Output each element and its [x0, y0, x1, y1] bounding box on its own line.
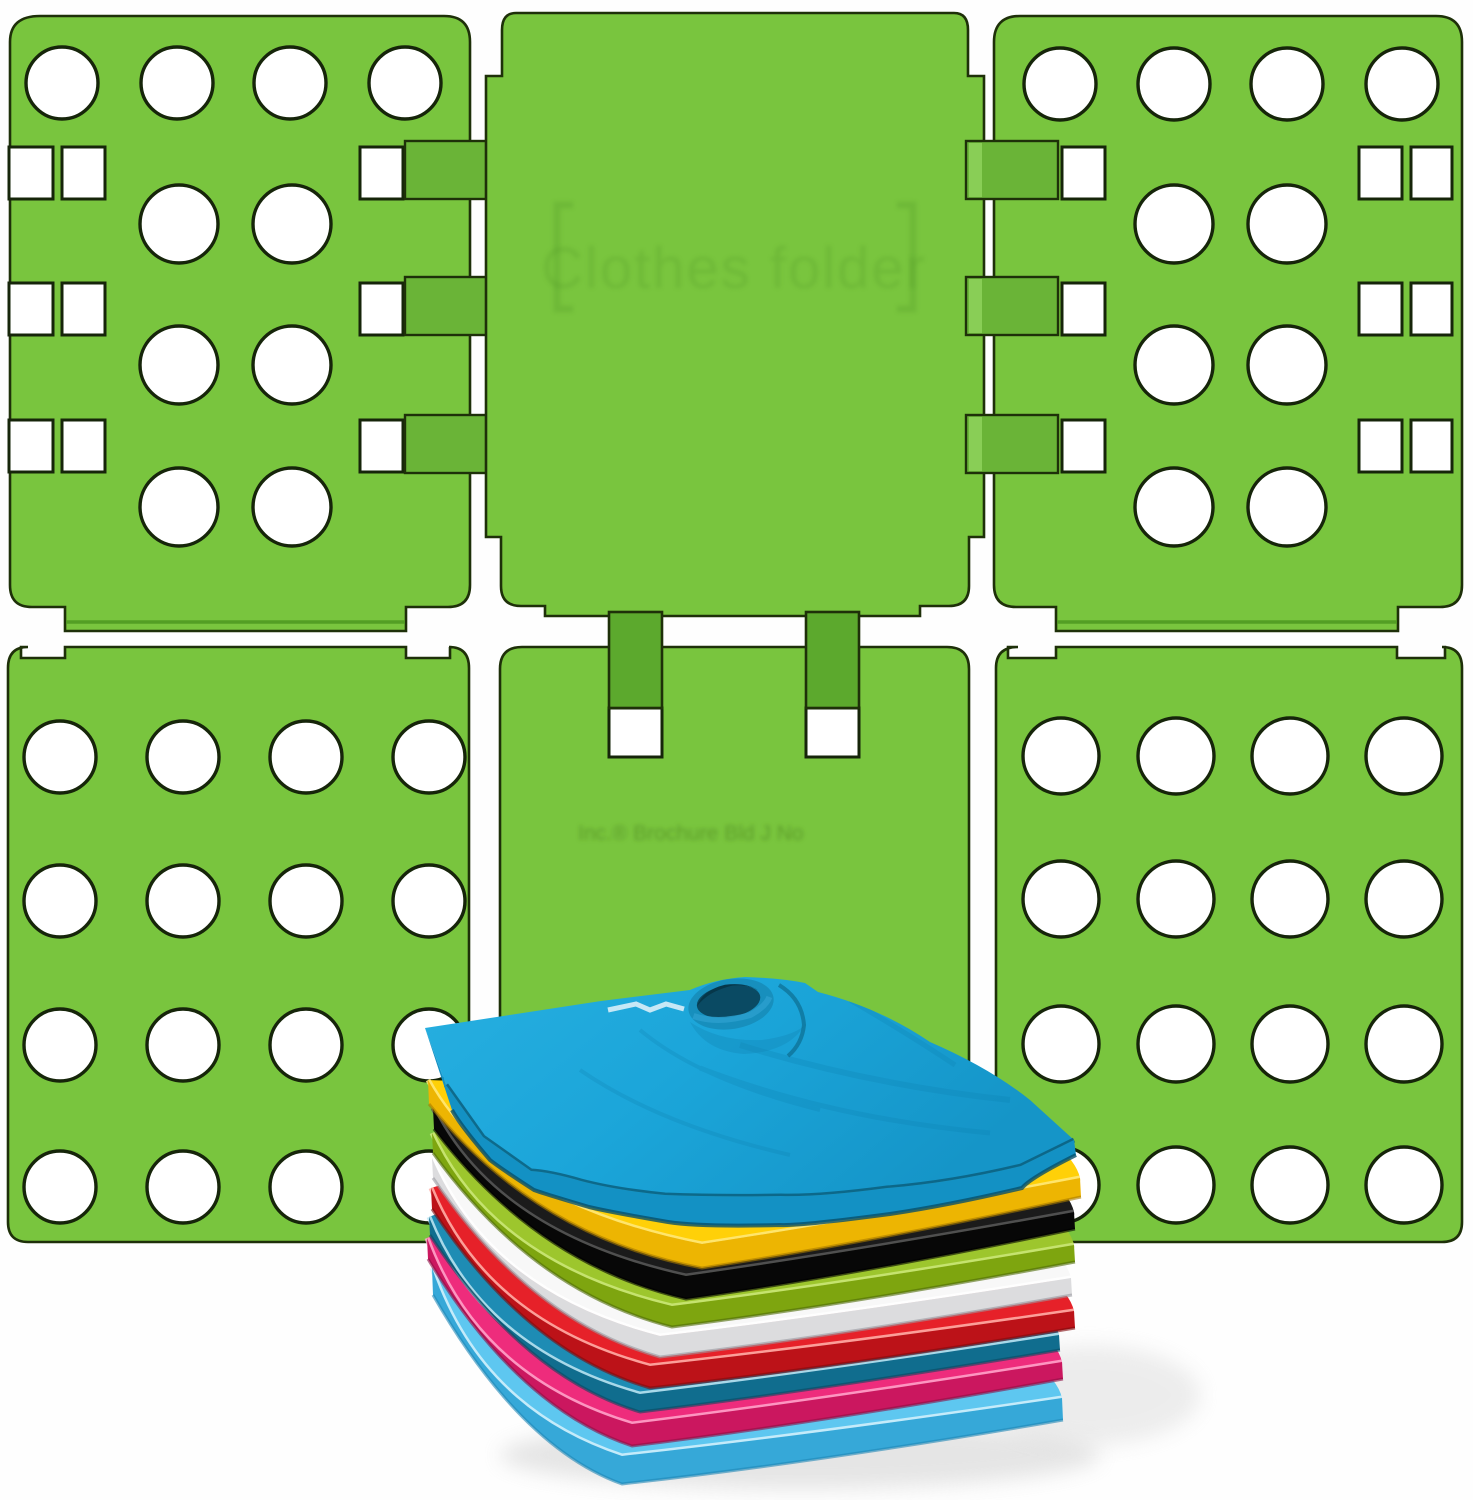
svg-text:Inc.® Brochure Bld J No: Inc.® Brochure Bld J No — [578, 822, 804, 845]
svg-text:Clothes folder: Clothes folder — [541, 236, 927, 301]
